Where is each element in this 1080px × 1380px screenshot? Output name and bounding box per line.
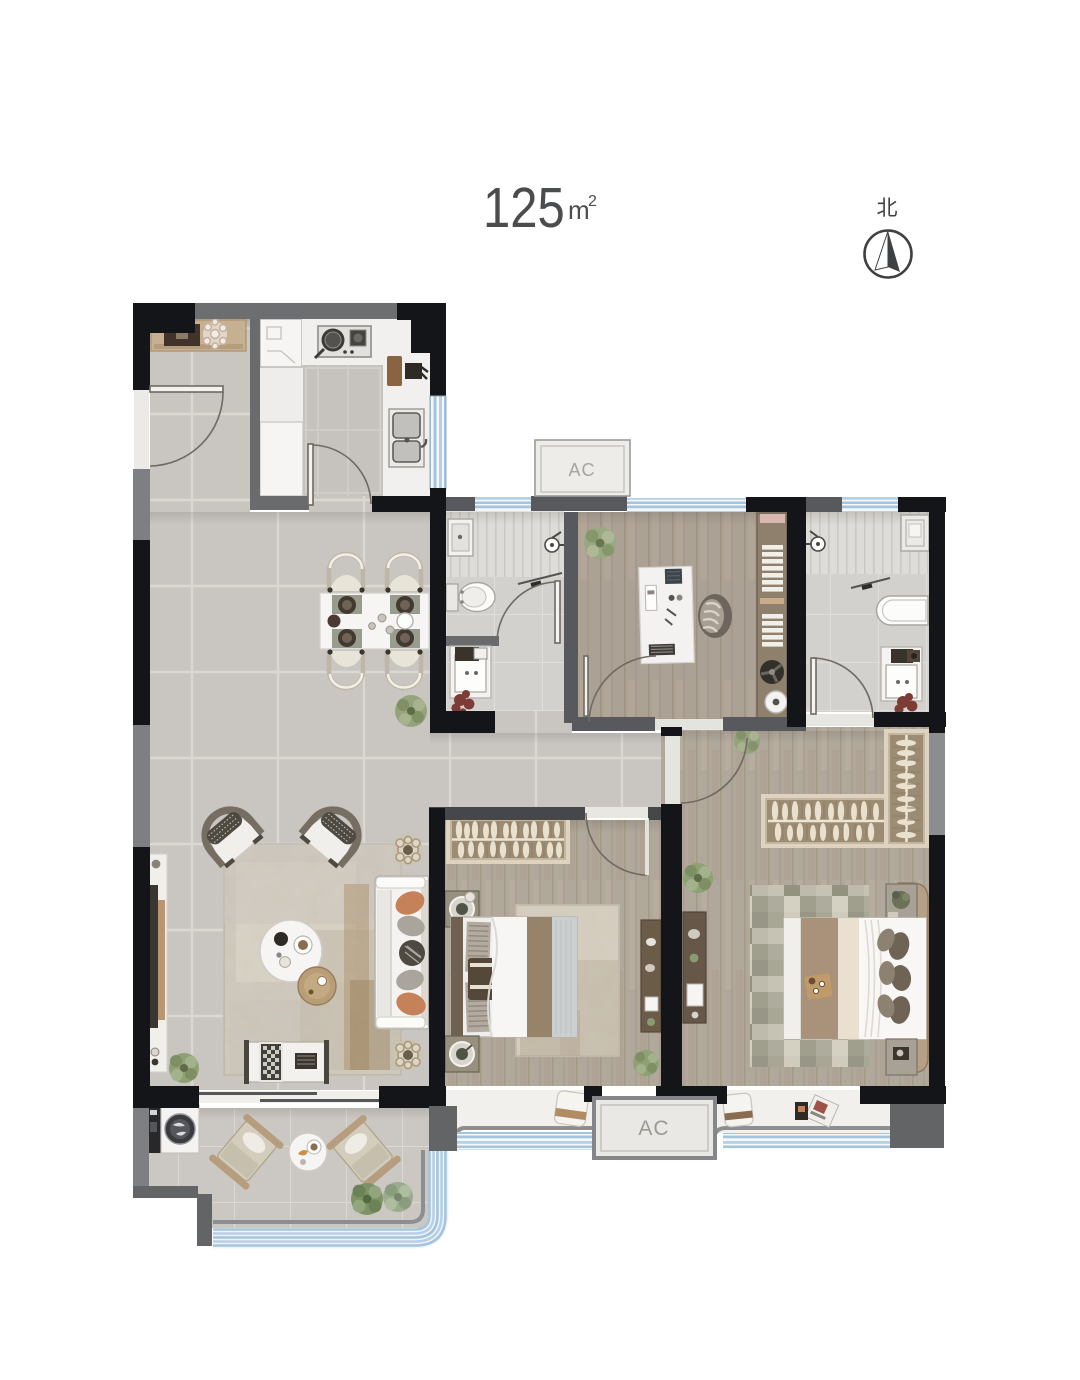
svg-text:m: m [568,195,590,225]
svg-text:125: 125 [483,177,565,240]
svg-text:AC: AC [638,1117,669,1140]
svg-text:2: 2 [588,193,597,210]
svg-text:AC: AC [568,460,595,480]
svg-text:北: 北 [877,197,898,220]
